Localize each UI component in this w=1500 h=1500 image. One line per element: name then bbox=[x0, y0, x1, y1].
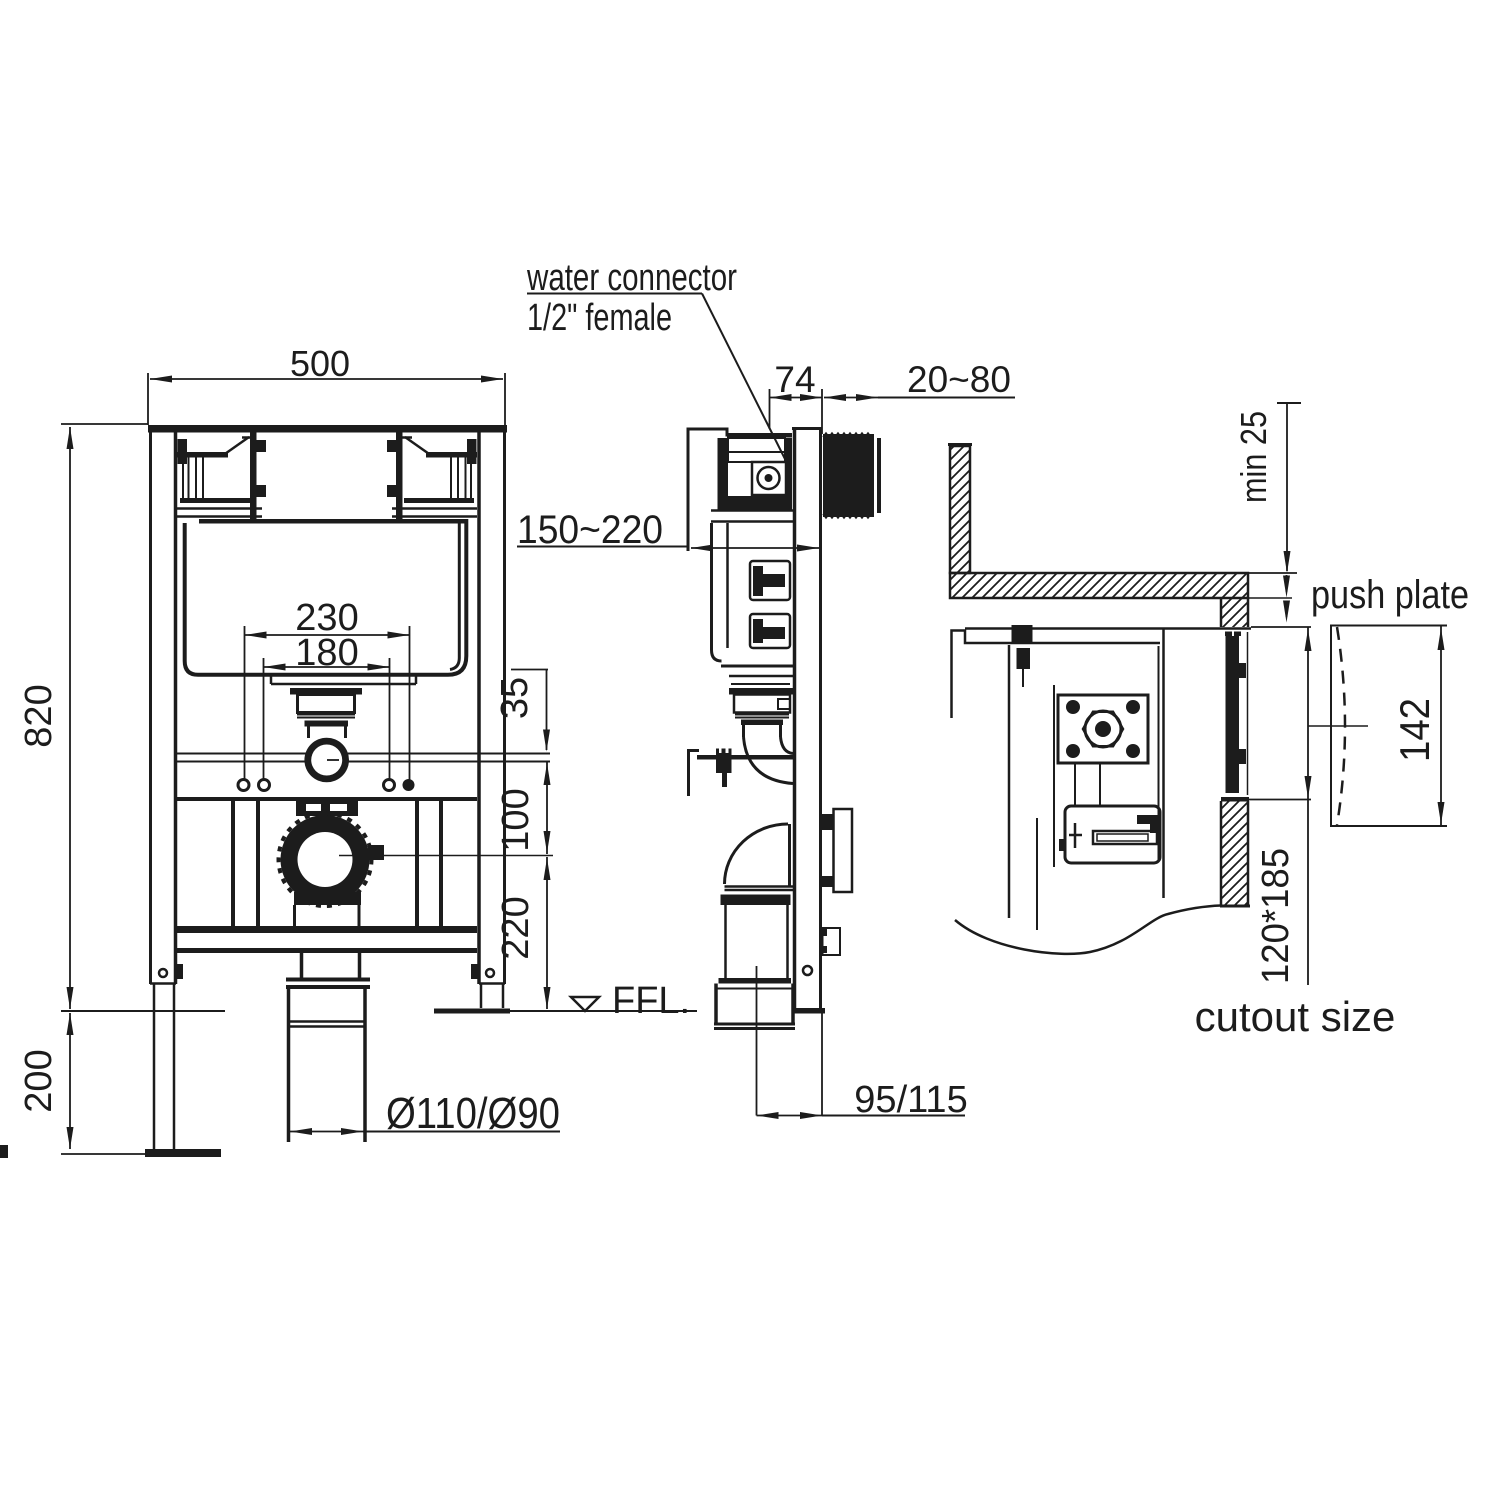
svg-text:95/115: 95/115 bbox=[854, 1079, 967, 1121]
svg-text:20~80: 20~80 bbox=[907, 359, 1011, 400]
svg-text:180: 180 bbox=[295, 632, 358, 674]
svg-text:1/2" female: 1/2" female bbox=[527, 297, 672, 339]
svg-text:cutout size: cutout size bbox=[1195, 993, 1396, 1040]
svg-text:35: 35 bbox=[494, 677, 536, 719]
svg-text:220: 220 bbox=[495, 896, 537, 959]
svg-text:820: 820 bbox=[18, 684, 60, 747]
svg-text:74: 74 bbox=[774, 359, 815, 400]
svg-text:120*185: 120*185 bbox=[1255, 848, 1297, 984]
svg-text:200: 200 bbox=[18, 1049, 60, 1112]
svg-text:150~220: 150~220 bbox=[517, 508, 663, 552]
svg-text:FFL.: FFL. bbox=[612, 980, 690, 1022]
svg-text:min 25: min 25 bbox=[1233, 411, 1274, 503]
svg-text:push plate: push plate bbox=[1311, 573, 1469, 617]
svg-text:142: 142 bbox=[1391, 698, 1438, 762]
svg-text:Ø110/Ø90: Ø110/Ø90 bbox=[386, 1089, 560, 1138]
svg-text:500: 500 bbox=[290, 343, 350, 384]
svg-text:100: 100 bbox=[495, 788, 537, 851]
